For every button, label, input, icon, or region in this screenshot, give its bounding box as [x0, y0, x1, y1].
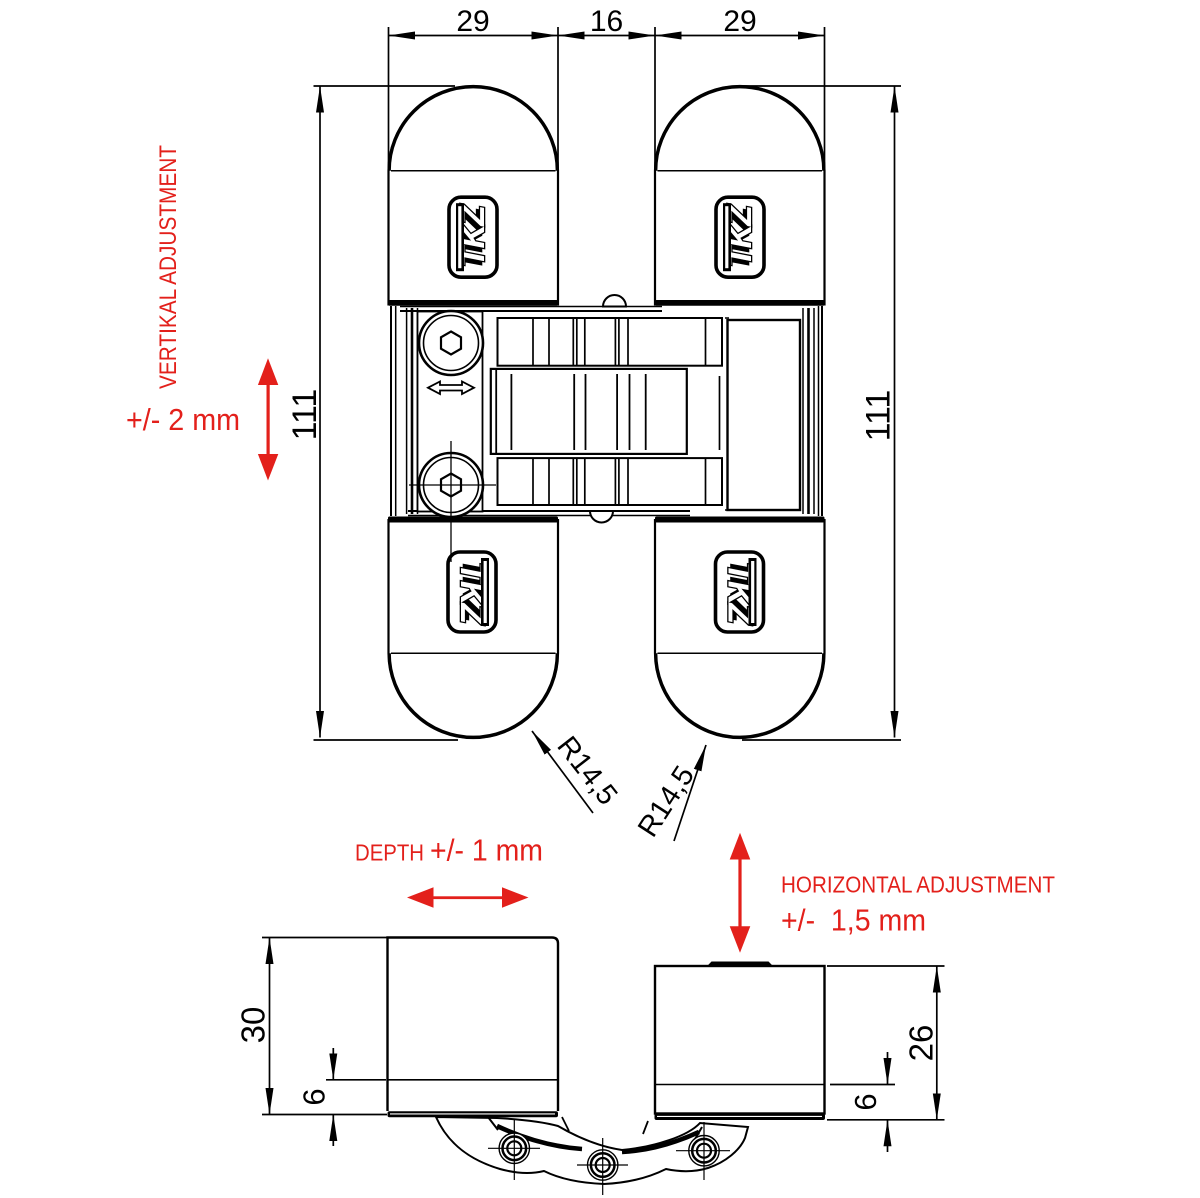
- svg-text:+/- 1,5 mm: +/- 1,5 mm: [781, 904, 926, 938]
- svg-text:+/- 2 mm: +/- 2 mm: [126, 403, 240, 437]
- svg-text:16: 16: [590, 5, 623, 38]
- svg-text:6: 6: [297, 1088, 332, 1105]
- svg-text:111: 111: [286, 389, 324, 441]
- svg-text:+/- 1 mm: +/- 1 mm: [430, 834, 543, 868]
- svg-text:HORIZONTAL ADJUSTMENT: HORIZONTAL ADJUSTMENT: [781, 872, 1055, 898]
- svg-text:29: 29: [456, 5, 489, 38]
- svg-text:30: 30: [235, 1007, 272, 1044]
- svg-text:VERTIKAL ADJUSTMENT: VERTIKAL ADJUSTMENT: [155, 145, 182, 389]
- svg-text:DEPTH: DEPTH: [355, 840, 424, 866]
- svg-text:6: 6: [848, 1093, 883, 1110]
- svg-text:29: 29: [723, 5, 756, 38]
- svg-text:111: 111: [860, 390, 898, 442]
- svg-text:26: 26: [903, 1025, 940, 1062]
